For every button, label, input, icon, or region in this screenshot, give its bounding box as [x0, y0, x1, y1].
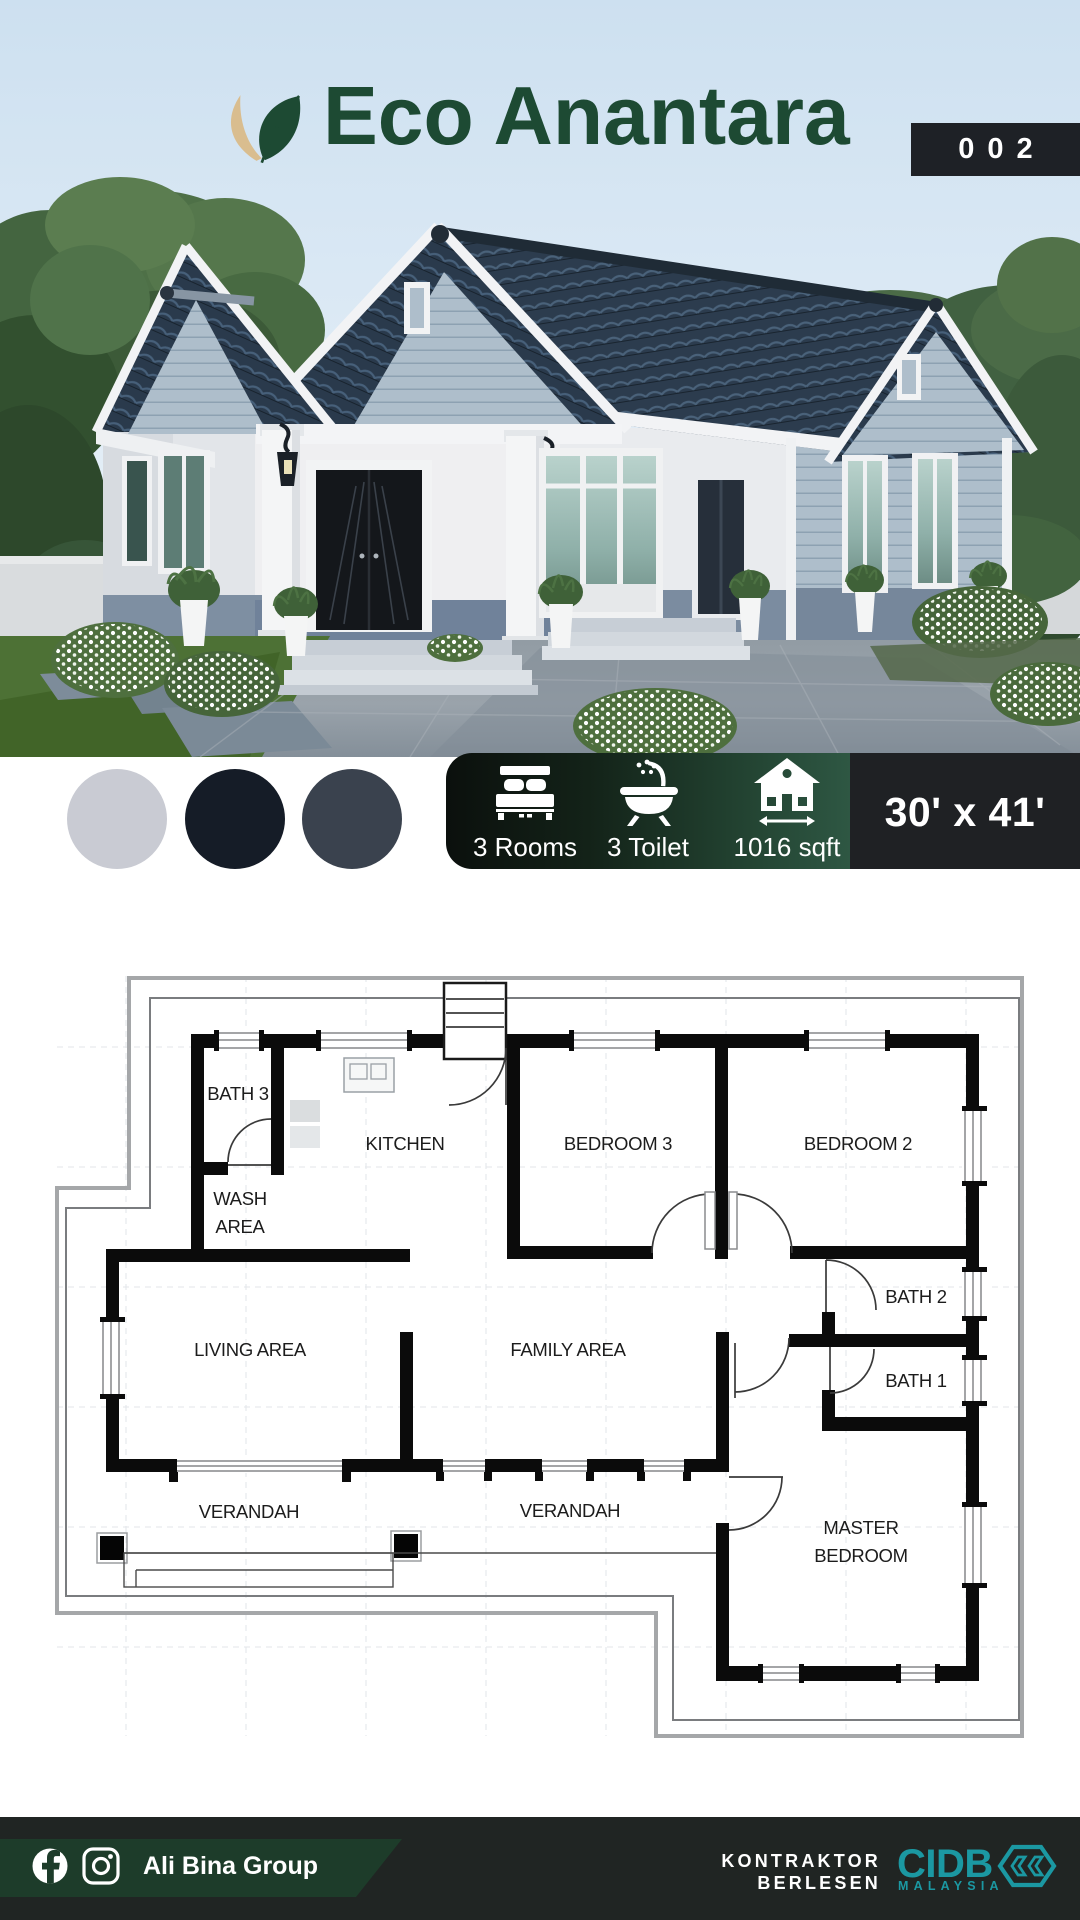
svg-text:MALAYSIA: MALAYSIA	[898, 1879, 1004, 1893]
svg-text:BATH 2: BATH 2	[885, 1286, 947, 1307]
svg-text:KONTRAKTOR: KONTRAKTOR	[721, 1851, 881, 1871]
svg-text:BERLESEN: BERLESEN	[757, 1873, 881, 1893]
svg-text:BEDROOM 3: BEDROOM 3	[564, 1133, 672, 1154]
svg-text:BEDROOM 2: BEDROOM 2	[804, 1133, 912, 1154]
svg-text:BEDROOM: BEDROOM	[814, 1545, 908, 1566]
svg-text:BATH 1: BATH 1	[885, 1370, 947, 1391]
svg-text:LIVING AREA: LIVING AREA	[194, 1339, 307, 1360]
svg-text:FAMILY AREA: FAMILY AREA	[510, 1339, 626, 1360]
svg-text:VERANDAH: VERANDAH	[199, 1501, 299, 1522]
svg-text:Ali Bina Group: Ali Bina Group	[143, 1852, 318, 1880]
svg-text:WASH: WASH	[213, 1188, 267, 1209]
svg-text:BATH 3: BATH 3	[207, 1083, 269, 1104]
svg-text:MASTER: MASTER	[823, 1517, 898, 1538]
svg-text:AREA: AREA	[215, 1216, 265, 1237]
svg-text:KITCHEN: KITCHEN	[365, 1133, 444, 1154]
svg-text:VERANDAH: VERANDAH	[520, 1500, 620, 1521]
